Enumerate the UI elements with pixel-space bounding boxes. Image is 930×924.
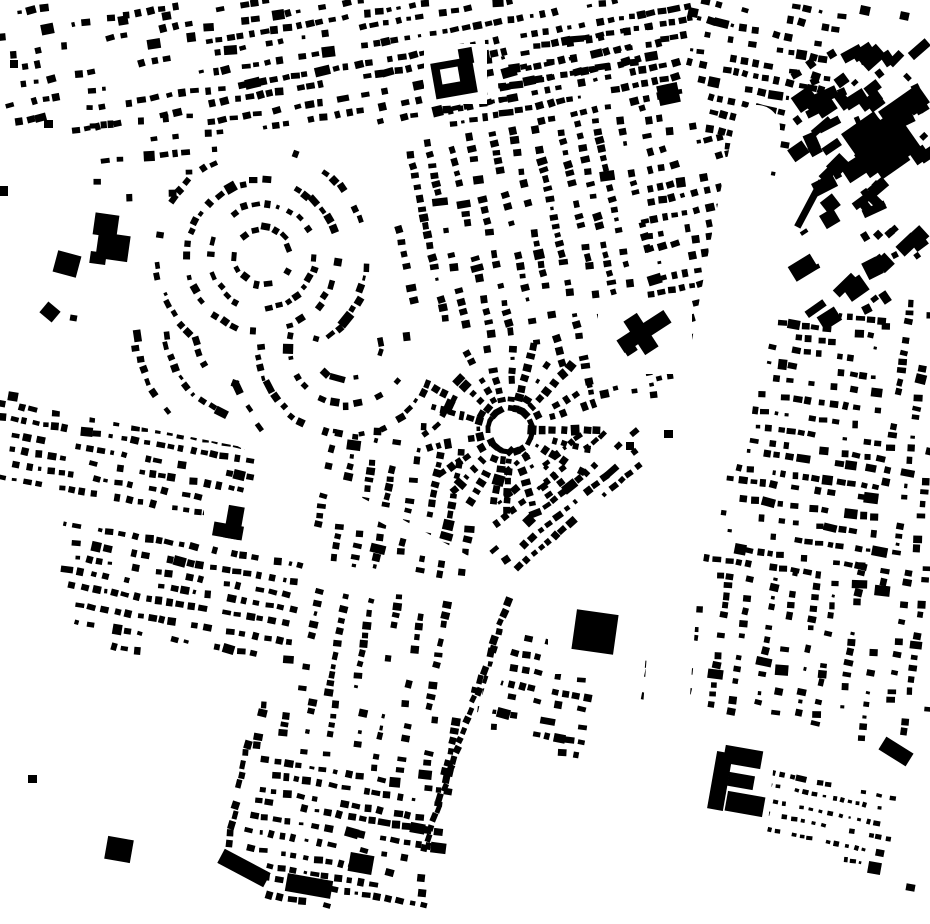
landmark-left-blob-c	[89, 251, 107, 265]
landmark-bl-square-bldg	[104, 836, 134, 863]
landmark-big-square-bldg	[571, 609, 618, 654]
landmark-school-tower	[458, 47, 475, 65]
figure-ground-map	[0, 0, 930, 924]
map-canvas	[0, 0, 930, 924]
landmark-school-court	[440, 67, 460, 85]
landmark-ne-square-bldg	[656, 82, 681, 106]
map-viewport	[0, 0, 930, 924]
